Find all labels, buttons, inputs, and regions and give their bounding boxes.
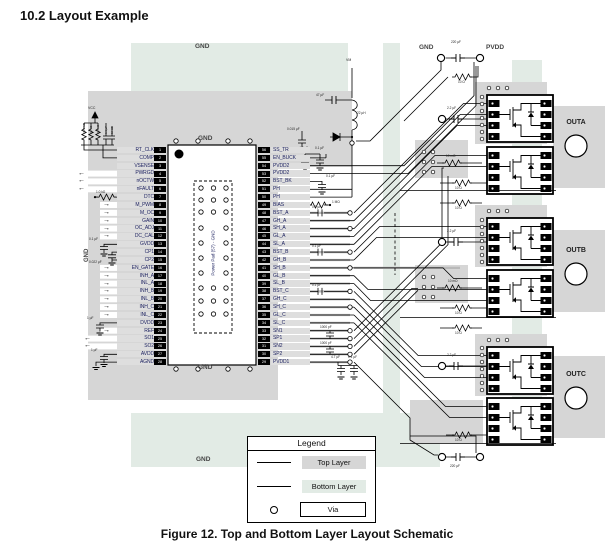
pin-number-left: 2: [154, 155, 166, 161]
gnd-label-chip-top: GND: [198, 135, 212, 142]
pin-label-left: DTC: [117, 194, 156, 200]
pin-label-right: PVDD1: [271, 359, 310, 365]
pin-label-left: GVDD: [117, 241, 156, 247]
res-1m-label: 1 MΩ: [332, 200, 340, 204]
cap-022-cp-label: 0.022 µF: [89, 260, 102, 264]
arrow-right-icon: →: [103, 232, 110, 239]
vcc-net-label: VCC: [88, 106, 95, 110]
outb-label: OUTB: [554, 247, 598, 254]
cap-1000pf-label: 1000 pF: [320, 341, 332, 345]
legend-row-via: Via: [248, 498, 375, 522]
top-layer-line-icon: [257, 462, 291, 463]
pin-number-right: 43: [258, 249, 270, 255]
pin-number-left: 21: [154, 304, 166, 310]
pin-label-right: SH_A: [271, 225, 310, 231]
pin-label-right: SL_B: [271, 280, 310, 286]
gnd-plane-label-top: GND: [195, 43, 209, 50]
pin-number-left: 23: [154, 320, 166, 326]
res-10ohm-label: 10 Ω: [455, 206, 462, 210]
res-10mohm-label: 10 mΩ: [448, 279, 457, 283]
cap-01-bsta-label: 0.1 µF: [312, 205, 321, 209]
pin-label-left: COMP: [117, 155, 156, 161]
pin-number-left: 27: [154, 351, 166, 357]
pin-label-right: GH_A: [271, 218, 310, 224]
pin-label-left: M_PWM: [117, 202, 156, 208]
pin-label-left: INH_A: [117, 273, 156, 279]
section-title: 10.2 Layout Example: [20, 8, 149, 23]
cap-220uf-bottom-label: 220 µF: [450, 464, 460, 468]
pin-number-left: 15: [154, 257, 166, 263]
arrow-right-icon: →: [103, 217, 110, 224]
pin-label-right: BST_BK: [271, 178, 310, 184]
pin-label-right: BIAS: [271, 202, 310, 208]
pin-number-left: 19: [154, 288, 166, 294]
pin-label-right: GL_B: [271, 273, 310, 279]
pin-label-left: nOCTW: [117, 178, 156, 184]
pin-number-left: 17: [154, 273, 166, 279]
arrow-right-icon: →: [103, 287, 110, 294]
pin-number-left: 11: [154, 226, 166, 232]
arrow-right-icon: →: [103, 272, 110, 279]
res-cluster-label: 10 kΩ: [110, 127, 114, 134]
pin-label-left: PWRGD: [117, 170, 156, 176]
pin-label-right: GH_C: [271, 296, 310, 302]
pin-number-left: 1: [154, 147, 166, 153]
pin-label-right: SH_B: [271, 265, 310, 271]
cap-01-bstbk-label: 0.1 µF: [326, 174, 335, 178]
pin-number-left: 9: [154, 210, 166, 216]
pin-label-left: CP2: [117, 257, 156, 263]
pin-label-right: PH: [271, 186, 310, 192]
pin-label-right: SN2: [271, 343, 310, 349]
pin-label-right: BST_B: [271, 249, 310, 255]
pin-number-right: 35: [258, 312, 270, 318]
pin-label-left: RT_CLK: [117, 147, 156, 153]
cap-01-gvdd-label: 0.1 µF: [89, 237, 98, 241]
cap-220uf-top-label: 220 µF: [451, 40, 461, 44]
legend-via-swatch: Via: [300, 502, 366, 517]
pin-number-right: 48: [258, 210, 270, 216]
pin-label-left: REF: [117, 328, 156, 334]
pvdd-label: PVDD: [486, 44, 504, 51]
res-10ohm-label: 10 Ω: [458, 80, 465, 84]
arrow-left-icon: ←: [84, 335, 91, 342]
pin-number-left: 6: [154, 186, 166, 192]
res-10ohm-label: 10 Ω: [455, 331, 462, 335]
pin-number-right: 54: [258, 163, 270, 169]
arrow-right-icon: →: [103, 280, 110, 287]
pin-label-right: SN1: [271, 328, 310, 334]
cap-0015-label: 0.015 µF: [287, 127, 300, 131]
pin-label-left: EN_GATE: [117, 265, 156, 271]
pin-label-right: SP2: [271, 351, 310, 357]
pin-number-right: 55: [258, 155, 270, 161]
bottom-layer-line-icon: [257, 486, 291, 487]
cap-01-top-label: 0.1 µF: [315, 146, 324, 150]
arrow-right-icon: →: [103, 327, 110, 334]
cap-1000pf-label: 1000 pF: [320, 325, 332, 329]
pin-number-right: 49: [258, 202, 270, 208]
pin-label-right: BST_A: [271, 210, 310, 216]
pin-number-right: 33: [258, 328, 270, 334]
via-icon: [270, 506, 278, 514]
pin1-marker: [175, 150, 184, 159]
legend-row-bottom-layer: Bottom Layer: [248, 475, 375, 499]
cap-01-pvdd1-label: 0.1 µF: [348, 355, 357, 359]
cap-2u2-label: 2.2 µF: [447, 106, 456, 110]
cap-4u7-pvdd1-label: 4.7 µF: [331, 355, 340, 359]
arrow-left-icon: ←: [78, 185, 85, 192]
legend-top-layer-swatch: Top Layer: [302, 456, 366, 469]
pin-number-right: 45: [258, 233, 270, 239]
arrow-right-icon: →: [103, 209, 110, 216]
pin-number-right: 31: [258, 343, 270, 349]
pin-number-left: 4: [154, 171, 166, 177]
legend-row-top-layer: Top Layer: [248, 451, 375, 475]
arrow-right-icon: →: [103, 295, 110, 302]
pin-label-left: DC_CAL: [117, 233, 156, 239]
pin-number-left: 5: [154, 178, 166, 184]
pin-number-right: 44: [258, 241, 270, 247]
pin-number-right: 56: [258, 147, 270, 153]
cap-cluster-label: 0.1 µF: [104, 126, 108, 134]
res-10ohm-label: 10 Ω: [455, 438, 462, 442]
pin-label-left: SO1: [117, 335, 156, 341]
pin-number-left: 8: [154, 202, 166, 208]
cap-1uf-avdd-label: 1 µF: [91, 348, 97, 352]
pin-number-left: 16: [154, 265, 166, 271]
pin-label-left: GAIN: [117, 218, 156, 224]
legend-title: Legend: [248, 437, 375, 451]
pin-label-left: DVDD: [117, 320, 156, 326]
pin-number-right: 37: [258, 296, 270, 302]
pin-label-left: CP1: [117, 249, 156, 255]
pin-label-right: PVDD2: [271, 163, 310, 169]
pin-label-left: INL_A: [117, 280, 156, 286]
cap-01-bstb-label: 0.1 µF: [312, 244, 321, 248]
legend-box: Legend Top Layer Bottom Layer Via: [247, 436, 376, 523]
res-cluster-label: 1.0 kΩ: [96, 125, 100, 133]
pin-label-right: SH_C: [271, 304, 310, 310]
pin-label-right: SL_A: [271, 241, 310, 247]
arrow-right-icon: →: [103, 225, 110, 232]
fet-packages: [487, 95, 553, 445]
pin-label-left: nFAULT: [117, 186, 156, 192]
pin-label-left: INL_C: [117, 312, 156, 318]
pin-label-left: INL_B: [117, 296, 156, 302]
pin-label-right: SS_TR: [271, 147, 310, 153]
res-cluster-label: 39.2 kΩ: [82, 123, 86, 133]
pin-number-left: 25: [154, 336, 166, 342]
res-10ohm-label: 10 Ω: [455, 186, 462, 190]
res-cluster-label: 10 kΩ: [89, 126, 93, 133]
pin-number-right: 29: [258, 359, 270, 365]
vm-net-label: VM: [346, 58, 351, 62]
pin-label-left: M_OC: [117, 210, 156, 216]
pin-number-right: 47: [258, 218, 270, 224]
pin-label-right: PH: [271, 194, 310, 200]
pin-number-left: 13: [154, 241, 166, 247]
pin-number-left: 7: [154, 194, 166, 200]
pin-number-right: 51: [258, 186, 270, 192]
datasheet-page: 10.2 Layout Example Figure 12. Top and B…: [0, 0, 614, 552]
pin-label-left: OC_ADJ: [117, 225, 156, 231]
pin-number-left: 28: [154, 359, 166, 365]
pin-number-right: 52: [258, 178, 270, 184]
cap-1uf-dvdd-label: 1 µF: [87, 316, 93, 320]
pin-label-right: GH_B: [271, 257, 310, 263]
power-pad-label: Power Pad (57) - GND: [211, 230, 216, 275]
pin-number-right: 34: [258, 320, 270, 326]
arrow-left-icon: ←: [78, 177, 85, 184]
legend-bottom-layer-swatch: Bottom Layer: [302, 480, 366, 493]
pin-label-right: SP1: [271, 335, 310, 341]
pin-label-left: SO2: [117, 343, 156, 349]
vias-terminals: [348, 54, 509, 460]
output-terminals: [565, 135, 587, 409]
pin-label-left: INH_C: [117, 304, 156, 310]
pin-number-right: 36: [258, 304, 270, 310]
pin-number-right: 41: [258, 265, 270, 271]
gnd-plane-label-bottom: GND: [196, 456, 210, 463]
res-10ohm-label: 10 Ω: [455, 311, 462, 315]
ind-22uh-label: 22 µH: [357, 111, 366, 115]
pin-number-left: 3: [154, 163, 166, 169]
pin-label-right: BST_C: [271, 288, 310, 294]
cap-01-bstc-label: 0.1 µF: [312, 283, 321, 287]
cap-2u2-label: 2.2 µF: [447, 353, 456, 357]
pin-number-right: 53: [258, 171, 270, 177]
pin-number-left: 22: [154, 312, 166, 318]
res-10mohm-label: 10 mΩ: [446, 154, 455, 158]
cap-2u2-label: 2.2 µF: [447, 229, 456, 233]
pin-number-right: 32: [258, 336, 270, 342]
pin-number-left: 24: [154, 328, 166, 334]
gnd-supply-label: GND: [419, 44, 433, 51]
pin-number-left: 12: [154, 233, 166, 239]
pin-number-right: 46: [258, 226, 270, 232]
arrow-right-icon: →: [103, 201, 110, 208]
pin-label-left: AVDD: [117, 351, 156, 357]
pin-label-left: VSENSE: [117, 163, 156, 169]
pin-label-left: INH_B: [117, 288, 156, 294]
res-dtc-label: 1.0 kΩ: [96, 190, 105, 194]
pin-number-left: 10: [154, 218, 166, 224]
pin-number-left: 20: [154, 296, 166, 302]
arrow-left-icon: ←: [84, 342, 91, 349]
pin-number-right: 50: [258, 194, 270, 200]
pin-label-left: AGND: [117, 359, 156, 365]
arrow-right-icon: →: [103, 303, 110, 310]
outa-label: OUTA: [554, 119, 598, 126]
pin-number-right: 42: [258, 257, 270, 263]
gnd-label-chip-bottom: GND: [198, 364, 212, 371]
pin-number-right: 30: [258, 351, 270, 357]
arrow-right-icon: →: [103, 311, 110, 318]
pin-number-left: 26: [154, 343, 166, 349]
figure-caption: Figure 12. Top and Bottom Layer Layout S…: [0, 527, 614, 541]
pin-label-right: SL_C: [271, 320, 310, 326]
cap-47uf-label: 47 µF: [316, 93, 324, 97]
outc-label: OUTC: [554, 371, 598, 378]
pin-number-left: 14: [154, 249, 166, 255]
pin-number-left: 18: [154, 281, 166, 287]
arrow-right-icon: →: [103, 264, 110, 271]
pin-label-right: PVDD2: [271, 170, 310, 176]
pin-number-right: 38: [258, 288, 270, 294]
pin-number-right: 39: [258, 281, 270, 287]
pin-label-right: EN_BUCK: [271, 155, 310, 161]
pin-label-right: GL_A: [271, 233, 310, 239]
pin-number-right: 40: [258, 273, 270, 279]
pin-label-right: GL_C: [271, 312, 310, 318]
arrow-left-icon: ←: [78, 170, 85, 177]
